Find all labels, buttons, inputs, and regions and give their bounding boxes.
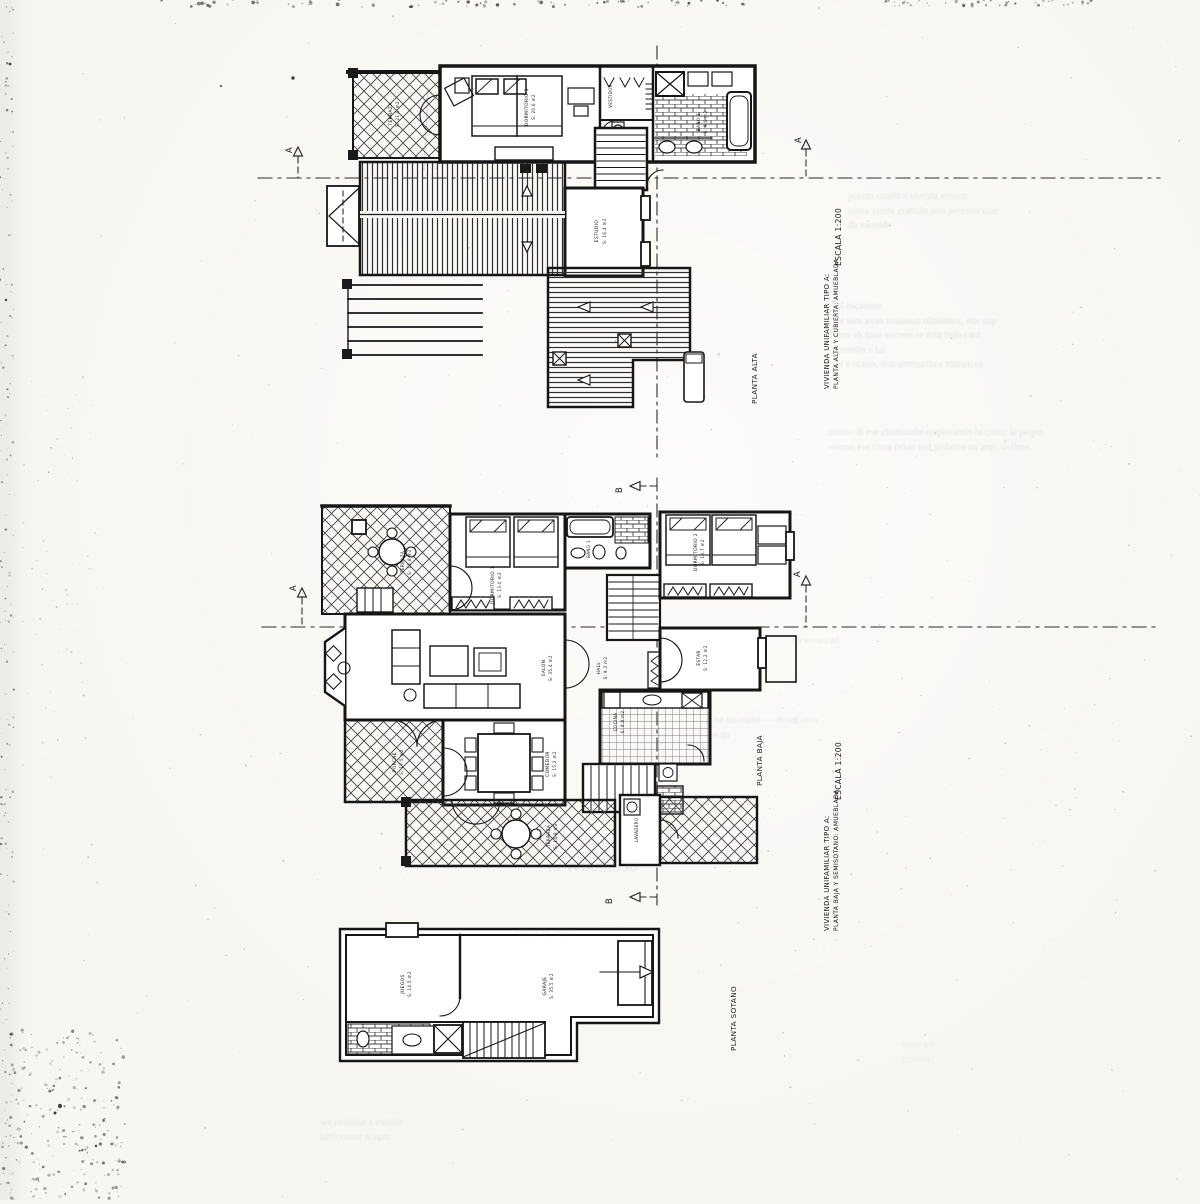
section-marker-b: B bbox=[615, 487, 625, 493]
room-label: S: 35.4 m2 bbox=[548, 655, 553, 681]
room-label: S: 16.4 m2 bbox=[602, 218, 607, 244]
bathtub bbox=[727, 92, 751, 150]
plan-title-alta: PLANTA ALTA bbox=[750, 353, 759, 404]
sun-lounger bbox=[684, 352, 704, 402]
room-label: HALL bbox=[596, 662, 601, 675]
titleblock-bottom-line2: PLANTA BAJA Y SEMISOTANO: AMUEBLADA bbox=[833, 789, 840, 931]
room-label: S: 13.0 m2 bbox=[497, 572, 502, 598]
room-label: SALON bbox=[541, 660, 547, 677]
room-label: S: 14.5 m2 bbox=[407, 971, 412, 997]
room-label: S: 21.0 m2 bbox=[395, 101, 400, 127]
double-door bbox=[565, 640, 589, 688]
titleblock-top-line1: VIVIENDA UNIFAMILIAR TIPO A: bbox=[823, 273, 831, 389]
room-label: DORMITORIO 1 bbox=[524, 88, 530, 126]
titleblock-bottom-line1: VIVIENDA UNIFAMILIAR TIPO A: bbox=[823, 815, 831, 931]
scale-note-top: ESCALA 1:200 bbox=[834, 208, 843, 266]
double-bed bbox=[472, 76, 562, 136]
terrace-steps bbox=[357, 588, 393, 612]
bay-window bbox=[325, 628, 345, 706]
section-marker-a: A bbox=[794, 137, 804, 143]
deck-steps bbox=[342, 279, 482, 359]
room-label: DORMITORIO 2 bbox=[693, 533, 699, 571]
section-marker-b: B bbox=[605, 898, 615, 904]
room-label: S: 13.7 m2 bbox=[700, 539, 705, 565]
planta-baja-plan bbox=[322, 506, 796, 866]
dormitorio1 bbox=[450, 514, 565, 610]
room-label: TERRAZA bbox=[388, 102, 394, 126]
sink bbox=[659, 141, 675, 153]
room-label: TERRAZA bbox=[546, 825, 551, 848]
stairs-sotano bbox=[463, 1022, 545, 1058]
room-label: S: 35.5 m2 bbox=[549, 973, 554, 999]
titleblock-top-line2: PLANTA ALTA Y CUBIERTA: AMUEBLADA bbox=[833, 258, 840, 389]
room-label: S: 9.6 m2 bbox=[703, 111, 708, 134]
terraza-sur bbox=[401, 797, 615, 866]
room-label: S: 12.2 m2 bbox=[703, 645, 708, 671]
section-marker-a: A bbox=[289, 585, 299, 591]
lavadero-block bbox=[620, 795, 757, 865]
room-label: S: 15.2 m2 bbox=[552, 751, 557, 777]
room-label: LAVADERO bbox=[634, 818, 639, 843]
room-label: ESTUDIO bbox=[594, 220, 600, 243]
room-label: TERRAZA bbox=[400, 551, 405, 574]
plan-title-sotano: PLANTA SOTANO bbox=[729, 986, 738, 1051]
room-label: VESTIDOR bbox=[608, 84, 613, 108]
floor-plan-drawing: PLANTA ALTAPLANTA BAJAPLANTA SOTANOESCAL… bbox=[0, 0, 1200, 1200]
salon bbox=[325, 614, 565, 720]
boiler bbox=[659, 764, 677, 781]
toilet bbox=[357, 1031, 369, 1047]
room-label: BAÑO 1 bbox=[696, 113, 701, 132]
room-label: S: 20.6 m2 bbox=[531, 94, 536, 120]
armchair bbox=[474, 648, 506, 676]
estudio-room bbox=[565, 188, 650, 276]
room-label: PORCHE bbox=[392, 752, 397, 772]
sink bbox=[686, 141, 702, 153]
room-label: S: 9.9 m2 bbox=[620, 711, 625, 734]
room-label: ESTAR bbox=[696, 650, 701, 665]
bano1-baja bbox=[565, 514, 650, 568]
entry-porch bbox=[766, 636, 796, 682]
room-label: S: 9.3 m2 bbox=[603, 657, 608, 680]
hall bbox=[565, 640, 660, 688]
stairs-baja bbox=[607, 575, 660, 640]
room-label: S: 12.8 m2 bbox=[407, 549, 412, 575]
estar-room bbox=[660, 628, 796, 690]
roof-hatch bbox=[360, 162, 565, 275]
sofa bbox=[392, 630, 420, 684]
section-marker-a: A bbox=[793, 571, 803, 577]
stove bbox=[682, 693, 702, 708]
plan-title-baja: PLANTA BAJA bbox=[755, 735, 764, 786]
section-marker-a: A bbox=[285, 147, 295, 153]
room-label: JUEGOS bbox=[400, 974, 406, 994]
scanned-plan-sheet: PLANTA ALTAPLANTA BAJAPLANTA SOTANOESCAL… bbox=[0, 0, 1200, 1200]
shower bbox=[656, 72, 684, 96]
aseo-sotano bbox=[348, 1024, 462, 1054]
round-table bbox=[502, 820, 530, 848]
room-label: S: 17.5 m2 bbox=[399, 749, 404, 775]
room-label: GARAJE bbox=[542, 977, 548, 996]
room-label: COCINA bbox=[613, 713, 618, 732]
terraza-baja bbox=[322, 506, 450, 614]
lower-roof-hatch bbox=[548, 268, 690, 407]
room-label: COMEDOR bbox=[545, 751, 551, 777]
room-label: DORMITORIO 1 bbox=[490, 566, 496, 604]
room-label: S: 14.8 m2 bbox=[553, 823, 558, 849]
room-label: BAÑO 1 bbox=[586, 540, 591, 558]
wall-notch bbox=[386, 923, 418, 937]
shower bbox=[434, 1025, 462, 1053]
planta-sotano-plan bbox=[340, 923, 659, 1061]
dormitorio2 bbox=[660, 512, 794, 598]
chimney bbox=[327, 186, 359, 246]
sofa bbox=[424, 684, 520, 708]
terraza-alta bbox=[348, 68, 440, 160]
